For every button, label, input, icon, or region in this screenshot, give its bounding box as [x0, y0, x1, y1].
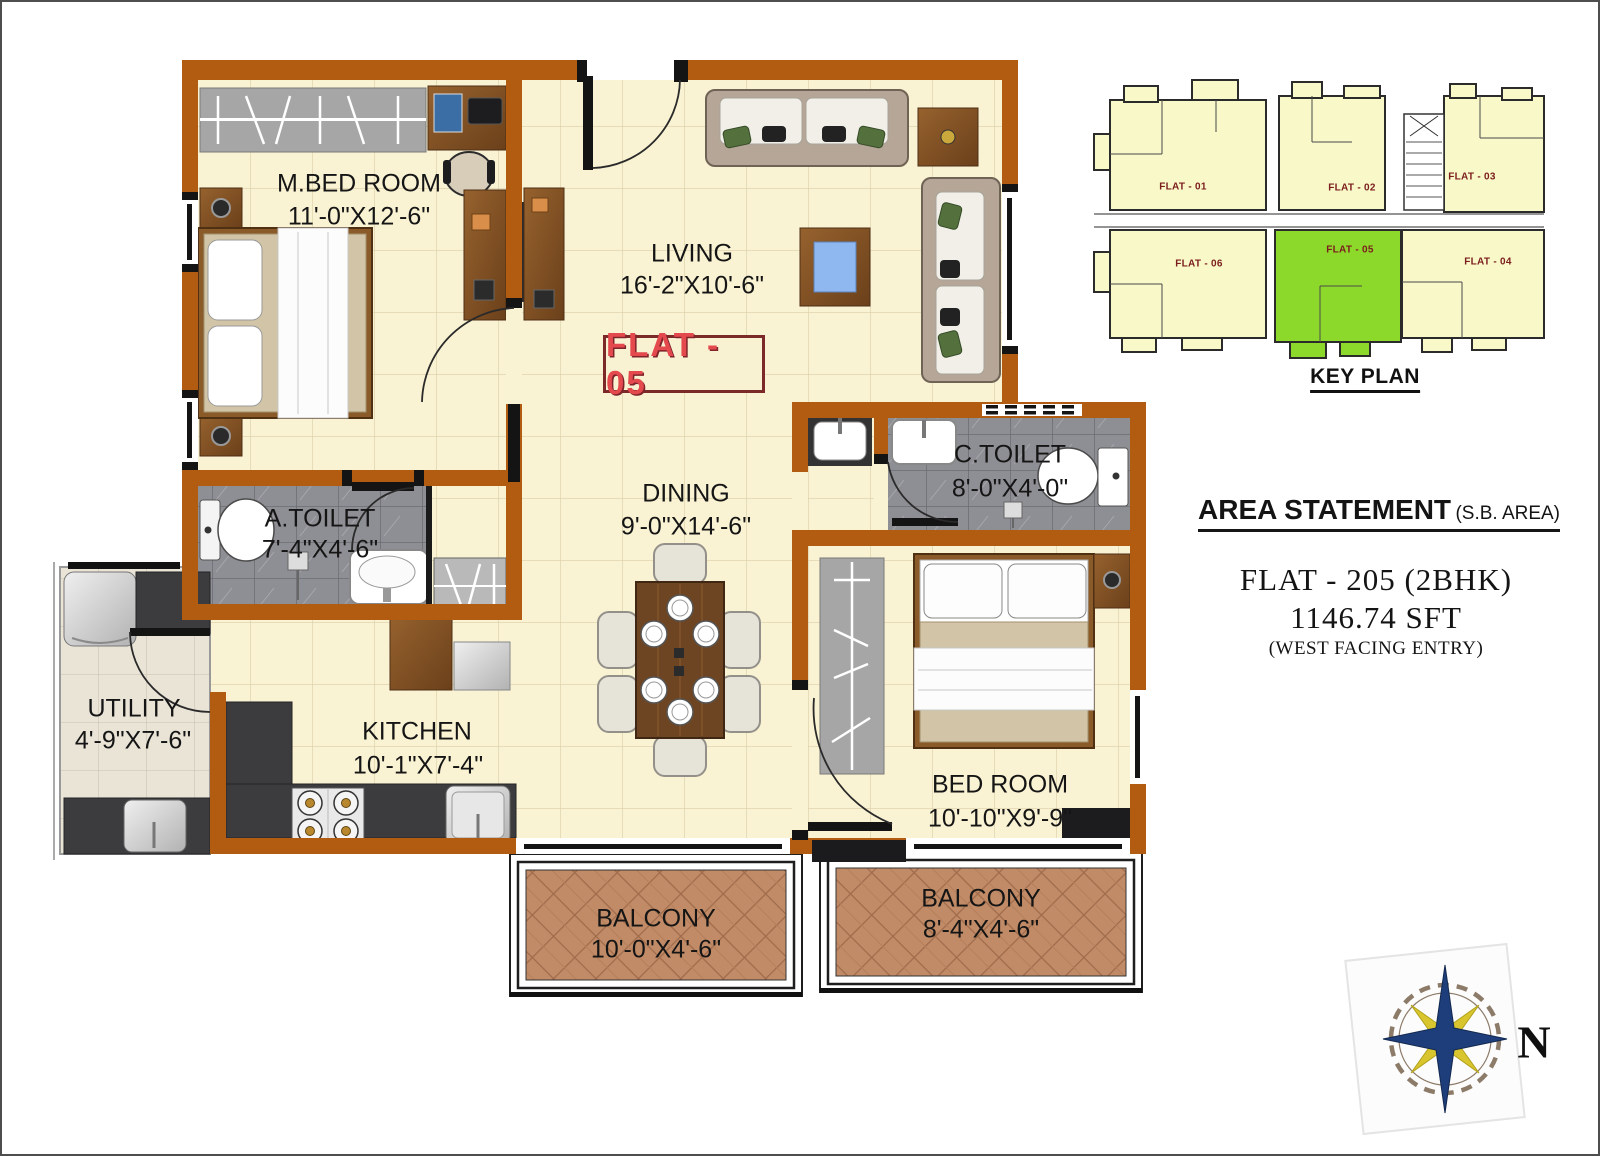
- stair-core: [1404, 114, 1444, 210]
- label-ctoilet-name: C.TOILET: [954, 441, 1066, 470]
- washing-machine: [64, 572, 136, 646]
- dining-table: [636, 582, 724, 738]
- label-living-dim: 16'-2"X10'-6": [620, 272, 764, 301]
- sofa-top: [706, 90, 908, 166]
- stove: [292, 788, 364, 846]
- coffee-table: [800, 228, 870, 306]
- fridge: [454, 642, 510, 690]
- label-kitchen-dim: 10'-1"X7'-4": [353, 752, 483, 781]
- keyplan-title: KEY PLAN: [1310, 365, 1420, 393]
- label-dining-dim: 9'-0"X14'-6": [621, 513, 751, 542]
- kitchen-sink: [446, 786, 510, 844]
- area-statement-heading: AREA STATEMENT (S.B. AREA): [1198, 494, 1560, 532]
- balcony-slider-left: [516, 838, 790, 854]
- label-balcony1-dim: 10'-0"X4'-6": [591, 936, 721, 965]
- label-kitchen-name: KITCHEN: [362, 718, 472, 747]
- bed-2: [914, 554, 1094, 748]
- bedroom-window: [1130, 690, 1146, 784]
- label-ctoilet-dim: 8'-0"X4'-0": [952, 475, 1068, 504]
- lobby-opening: [792, 472, 808, 530]
- label-balcony1-name: BALCONY: [596, 905, 715, 934]
- keyplan-flat-06: FLAT - 06: [1175, 259, 1223, 270]
- keyplan-flat-02: FLAT - 02: [1328, 183, 1376, 194]
- label-atoilet-dim: 7'-4"X4'-6": [262, 536, 378, 565]
- sofa-right: [922, 178, 1000, 382]
- label-balcony2-dim: 8'-4"X4'-6": [923, 916, 1039, 945]
- label-dining-name: DINING: [642, 480, 730, 509]
- keyplan-flat-03: FLAT - 03: [1448, 172, 1496, 183]
- label-balcony2-name: BALCONY: [921, 885, 1040, 914]
- label-atoilet-name: A.TOILET: [265, 505, 376, 534]
- label-mbed-dim: 11'-0"X12'-6": [288, 203, 430, 232]
- c-toilet-vent: [982, 404, 1082, 416]
- utility-sink: [124, 800, 186, 852]
- label-utility-dim: 4'-9"X7'-6": [75, 727, 191, 756]
- area-statement-area: 1146.74 SFT: [1198, 600, 1554, 636]
- label-mbed-name: M.BED ROOM: [277, 170, 441, 199]
- wardrobe: [200, 88, 426, 152]
- keyplan-flat-05: FLAT - 05: [1326, 245, 1374, 256]
- living-window: [1002, 184, 1018, 354]
- c-toilet-sink: [892, 420, 956, 464]
- wash-basin-outside: [808, 418, 872, 466]
- label-living-name: LIVING: [651, 240, 733, 269]
- bedroom-wardrobe: [820, 558, 884, 774]
- area-statement-flat: FLAT - 205 (2BHK): [1198, 562, 1554, 598]
- key-plan: [1094, 80, 1544, 358]
- area-statement: AREA STATEMENT (S.B. AREA) FLAT - 205 (2…: [1198, 494, 1554, 660]
- floor-plan-sheet: M.BED ROOM 11'-0"X12'-6" LIVING 16'-2"X1…: [0, 0, 1600, 1156]
- flat-number-badge: FLAT - 05: [603, 335, 765, 393]
- area-statement-title: AREA STATEMENT: [1198, 494, 1451, 525]
- computer-desk: [428, 86, 506, 150]
- compass-north-label: N: [1517, 1016, 1550, 1069]
- compass-rose: [1345, 944, 1524, 1134]
- label-bedroom-dim: 10'-10"X9'-9": [928, 805, 1072, 834]
- area-statement-qualifier: (S.B. AREA): [1455, 503, 1560, 524]
- side-table: [918, 108, 978, 166]
- label-utility-name: UTILITY: [87, 695, 180, 724]
- bedside-table-2: [1094, 554, 1130, 608]
- label-bedroom-name: BED ROOM: [932, 771, 1068, 800]
- area-statement-facing: (WEST FACING ENTRY): [1198, 638, 1554, 660]
- double-bed: [198, 228, 372, 418]
- keyplan-flat-04: FLAT - 04: [1464, 257, 1512, 268]
- keyplan-flat-01: FLAT - 01: [1159, 182, 1207, 193]
- kitchen-cabinet: [390, 616, 452, 690]
